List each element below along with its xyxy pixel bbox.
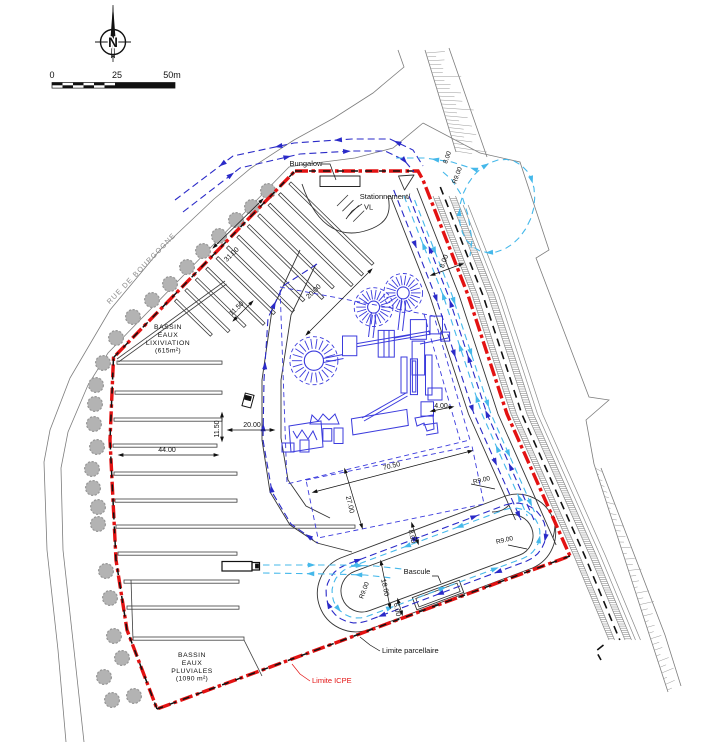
svg-text:50m: 50m	[163, 70, 181, 80]
svg-text:BASSIN: BASSIN	[154, 324, 182, 331]
svg-text:(615m²): (615m²)	[155, 348, 181, 355]
svg-text:11.50: 11.50	[214, 420, 221, 437]
svg-text:Limite parcellaire: Limite parcellaire	[382, 646, 439, 655]
svg-text:4.00: 4.00	[434, 403, 448, 410]
svg-text:VL: VL	[364, 203, 373, 212]
svg-text:44.00: 44.00	[158, 447, 176, 454]
svg-text:N: N	[108, 35, 118, 50]
svg-text:Bungalow: Bungalow	[290, 159, 324, 168]
svg-text:Stationnement/: Stationnement/	[360, 192, 411, 201]
svg-text:BASSIN: BASSIN	[178, 652, 206, 659]
svg-text:PLUVIALES: PLUVIALES	[171, 668, 213, 675]
svg-text:EAUX: EAUX	[182, 660, 203, 667]
svg-text:20.00: 20.00	[243, 422, 261, 429]
svg-text:25: 25	[112, 70, 122, 80]
svg-text:(1090 m²): (1090 m²)	[176, 676, 208, 683]
svg-text:EAUX: EAUX	[158, 332, 179, 339]
svg-text:Bascule: Bascule	[404, 567, 431, 576]
svg-text:0: 0	[49, 70, 54, 80]
svg-text:LIXIVIATION: LIXIVIATION	[146, 340, 190, 347]
svg-text:Limite ICPE: Limite ICPE	[312, 676, 352, 685]
